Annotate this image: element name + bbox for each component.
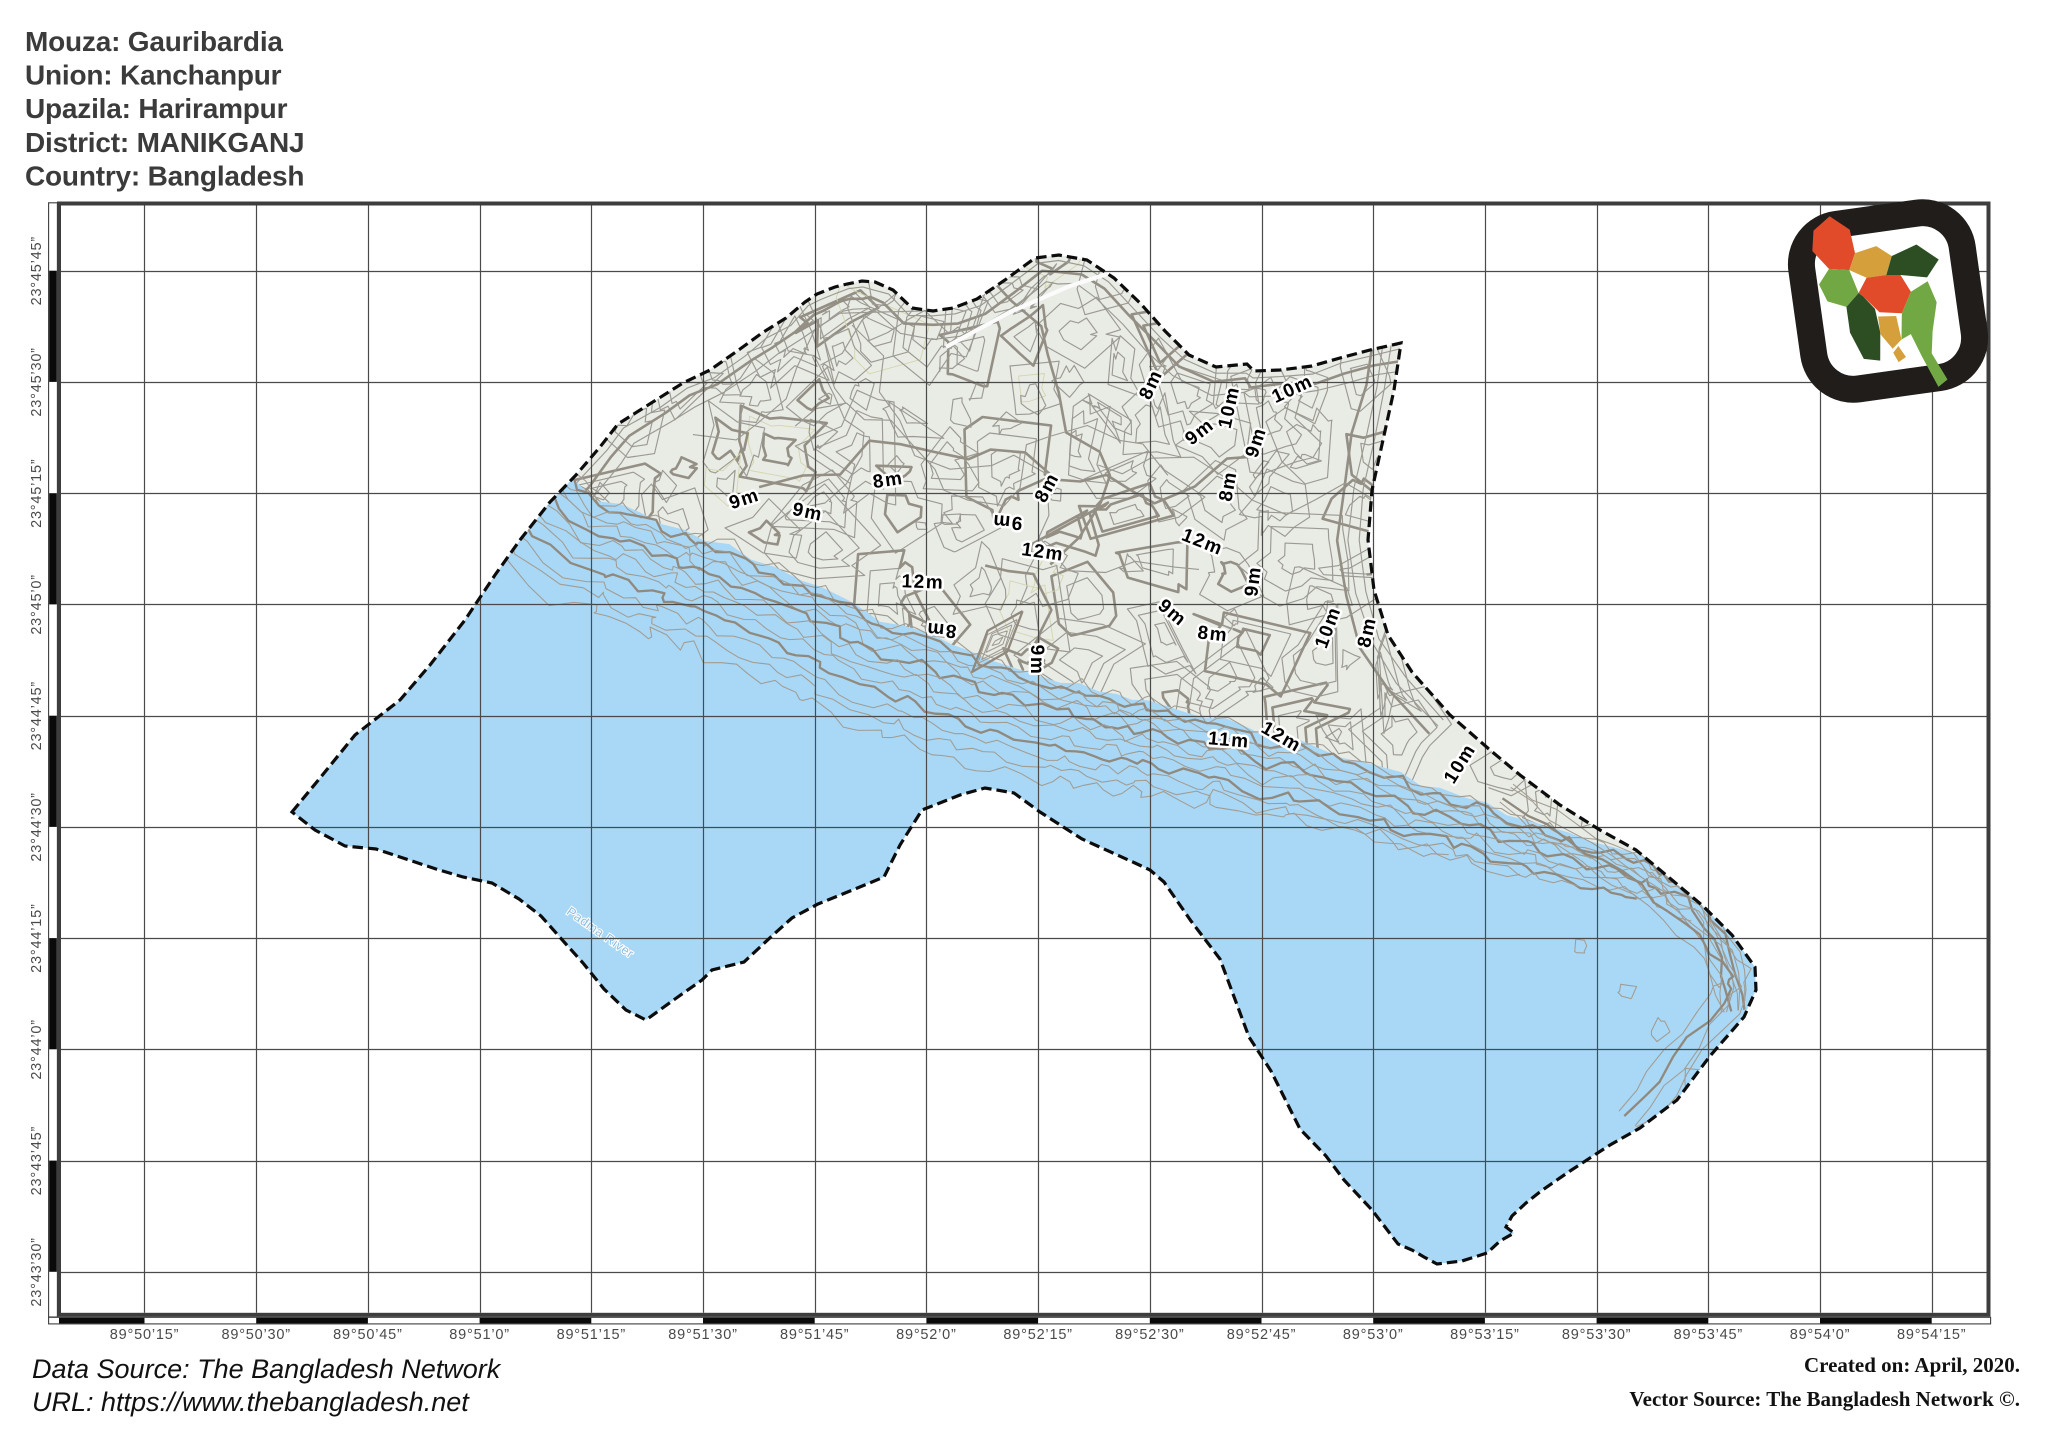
svg-text:Mouza: Gauribardia: Mouza: Gauribardia bbox=[25, 26, 283, 57]
svg-text:12m: 12m bbox=[901, 571, 945, 593]
svg-text:23°44’45”: 23°44’45” bbox=[29, 681, 45, 750]
svg-text:8m: 8m bbox=[1196, 622, 1229, 646]
svg-text:89°53’0”: 89°53’0” bbox=[1343, 1327, 1404, 1343]
svg-text:89°51’15”: 89°51’15” bbox=[557, 1327, 626, 1343]
svg-text:Union: Kanchanpur: Union: Kanchanpur bbox=[25, 60, 282, 91]
svg-text:23°43’45”: 23°43’45” bbox=[29, 1126, 45, 1195]
svg-text:89°50’15”: 89°50’15” bbox=[110, 1327, 179, 1343]
svg-text:Created on: April, 2020.: Created on: April, 2020. bbox=[1804, 1353, 2020, 1377]
svg-text:89°51’30”: 89°51’30” bbox=[668, 1327, 737, 1343]
svg-text:Data Source: The Bangladesh Ne: Data Source: The Bangladesh Network bbox=[32, 1354, 502, 1384]
svg-text:23°45’0”: 23°45’0” bbox=[29, 574, 45, 635]
svg-text:Vector Source: The Bangladesh: Vector Source: The Bangladesh Network ©. bbox=[1629, 1387, 2020, 1411]
svg-text:23°44’30”: 23°44’30” bbox=[29, 792, 45, 861]
svg-text:89°52’30”: 89°52’30” bbox=[1115, 1327, 1184, 1343]
svg-text:Country: Bangladesh: Country: Bangladesh bbox=[25, 160, 304, 191]
svg-text:89°51’45”: 89°51’45” bbox=[780, 1327, 849, 1343]
svg-text:9m: 9m bbox=[1026, 645, 1047, 676]
svg-text:89°52’45”: 89°52’45” bbox=[1227, 1327, 1296, 1343]
svg-text:23°45’30”: 23°45’30” bbox=[29, 347, 45, 416]
svg-text:11m: 11m bbox=[1207, 728, 1250, 753]
svg-text:9m: 9m bbox=[991, 510, 1023, 534]
svg-text:23°45’15”: 23°45’15” bbox=[29, 458, 45, 527]
svg-text:Upazila: Harirampur: Upazila: Harirampur bbox=[25, 93, 288, 124]
svg-text:89°53’45”: 89°53’45” bbox=[1674, 1327, 1743, 1343]
svg-text:District: MANIKGANJ: District: MANIKGANJ bbox=[25, 127, 304, 158]
svg-text:89°54’15”: 89°54’15” bbox=[1897, 1327, 1966, 1343]
svg-text:89°52’15”: 89°52’15” bbox=[1003, 1327, 1072, 1343]
svg-text:89°50’30”: 89°50’30” bbox=[221, 1327, 290, 1343]
svg-text:23°43’30”: 23°43’30” bbox=[29, 1237, 45, 1306]
svg-text:89°50’45”: 89°50’45” bbox=[333, 1327, 402, 1343]
svg-text:89°52’0”: 89°52’0” bbox=[896, 1327, 957, 1343]
svg-text:23°45’45”: 23°45’45” bbox=[29, 236, 45, 305]
svg-text:URL: https://www.thebangladesh: URL: https://www.thebangladesh.net bbox=[32, 1387, 470, 1417]
svg-text:8m: 8m bbox=[872, 468, 905, 493]
svg-text:23°44’0”: 23°44’0” bbox=[29, 1019, 45, 1080]
svg-text:89°53’15”: 89°53’15” bbox=[1450, 1327, 1519, 1343]
svg-text:23°44’15”: 23°44’15” bbox=[29, 903, 45, 972]
svg-text:9m: 9m bbox=[1241, 565, 1266, 598]
svg-text:89°51’0”: 89°51’0” bbox=[449, 1327, 510, 1343]
svg-text:89°53’30”: 89°53’30” bbox=[1562, 1327, 1631, 1343]
svg-text:8m: 8m bbox=[925, 618, 957, 642]
svg-text:89°54’0”: 89°54’0” bbox=[1790, 1327, 1851, 1343]
